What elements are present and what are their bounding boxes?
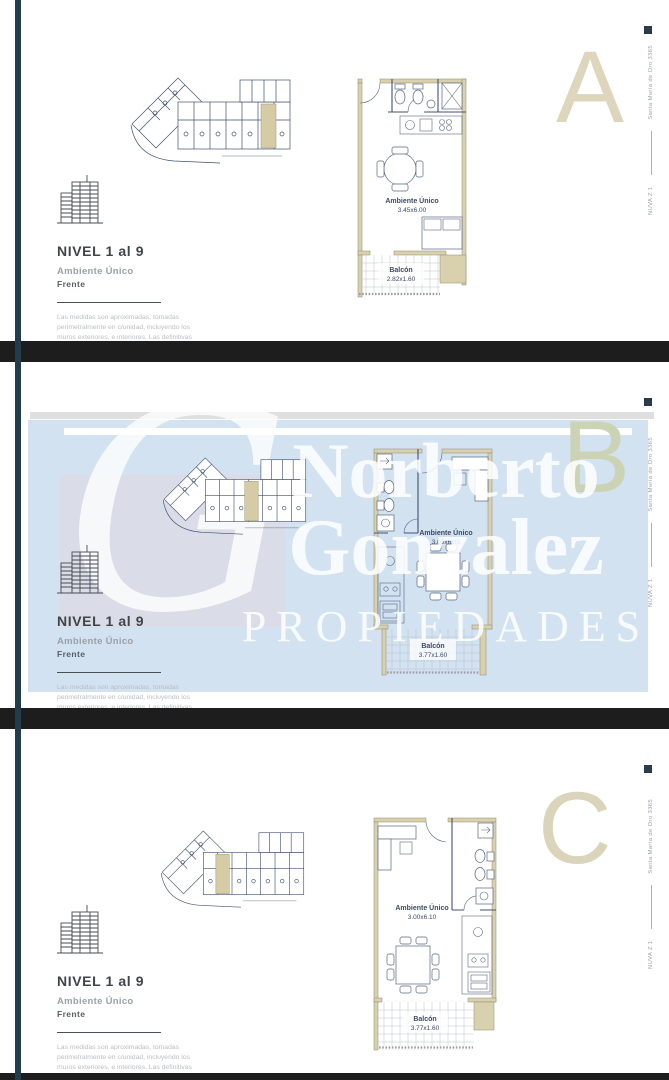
side-project: NUVA Z 1 bbox=[648, 940, 654, 969]
divider-bar bbox=[0, 1073, 669, 1080]
unit-info: NIVEL 1 al 9 Ambiente Único Frente Las m… bbox=[57, 175, 195, 341]
side-rule bbox=[651, 131, 652, 175]
divider-rule bbox=[57, 1032, 161, 1033]
balcony-label: Balcón bbox=[413, 1016, 436, 1023]
side-address: Santa María de Oro 3365 bbox=[648, 45, 654, 120]
level-title: NIVEL 1 al 9 bbox=[57, 973, 195, 989]
balcony-label: Balcón bbox=[389, 267, 412, 274]
divider-bar bbox=[0, 708, 669, 729]
highlighted-unit bbox=[245, 481, 258, 520]
room-label: Ambiente Único bbox=[419, 528, 472, 537]
floor-plan: Ambiente Único 3.00x6.35 Balcón 3.77x1.6… bbox=[368, 443, 498, 685]
key-plan bbox=[122, 58, 298, 174]
unit-type: Ambiente Único bbox=[57, 636, 195, 647]
corner-marker bbox=[644, 398, 652, 406]
room-dimensions: 3.45x6.00 bbox=[398, 207, 427, 214]
orientation: Frente bbox=[57, 279, 195, 289]
floor-plan: Ambiente Único 3.00x6.10 Balcón 3.77x1.6… bbox=[368, 812, 502, 1058]
measurements-disclaimer: Las medidas son aproximadas, tomadas per… bbox=[57, 683, 195, 708]
balcony-dimensions: 3.77x1.60 bbox=[411, 1025, 440, 1032]
building-elevation-icon bbox=[57, 175, 103, 229]
orientation: Frente bbox=[57, 1009, 195, 1019]
balcony-dimensions: 3.77x1.60 bbox=[419, 652, 448, 659]
side-address: Santa María de Oro 3365 bbox=[648, 437, 654, 512]
key-plan bbox=[155, 440, 313, 544]
highlighted-unit bbox=[261, 104, 276, 148]
building-elevation-icon bbox=[57, 545, 103, 599]
side-label: NUVA Z 1 Santa María de Oro 3365 bbox=[646, 45, 656, 215]
level-title: NIVEL 1 al 9 bbox=[57, 243, 195, 259]
level-title: NIVEL 1 al 9 bbox=[57, 613, 195, 629]
side-rule bbox=[651, 523, 652, 567]
side-label: NUVA Z 1 Santa María de Oro 3365 bbox=[646, 799, 656, 969]
divider-rule bbox=[57, 302, 161, 303]
side-address: Santa María de Oro 3365 bbox=[648, 799, 654, 874]
unit-letter: A bbox=[556, 36, 624, 138]
corner-marker bbox=[644, 765, 652, 773]
building-elevation-icon bbox=[57, 905, 103, 959]
divider-bar bbox=[0, 341, 669, 362]
room-label: Ambiente Único bbox=[385, 196, 438, 205]
measurements-disclaimer: Las medidas son aproximadas, tomadas per… bbox=[57, 313, 195, 341]
side-project: NUVA Z 1 bbox=[648, 186, 654, 215]
room-label: Ambiente Único bbox=[395, 903, 448, 912]
panel-unit-b: G B NIVEL 1 al 9 Ambiente Único Frente L… bbox=[0, 362, 669, 708]
key-plan bbox=[153, 813, 311, 917]
corner-marker bbox=[644, 26, 652, 34]
panel-unit-a: A NIVEL 1 al 9 Ambiente Único Frente Las… bbox=[0, 0, 669, 341]
highlighted-unit bbox=[216, 854, 229, 893]
panel-unit-c: C NIVEL 1 al 9 Ambiente Único Frente Las… bbox=[0, 729, 669, 1073]
unit-type: Ambiente Único bbox=[57, 996, 195, 1007]
divider-rule bbox=[57, 672, 161, 673]
side-label: NUVA Z 1 Santa María de Oro 3365 bbox=[646, 437, 656, 607]
balcony-label: Balcón bbox=[421, 643, 444, 650]
unit-type: Ambiente Único bbox=[57, 266, 195, 277]
side-project: NUVA Z 1 bbox=[648, 578, 654, 607]
side-rule bbox=[651, 885, 652, 929]
unit-info: NIVEL 1 al 9 Ambiente Único Frente Las m… bbox=[57, 545, 195, 708]
left-accent-bar bbox=[15, 0, 21, 1080]
balcony-dimensions: 2.82x1.60 bbox=[387, 276, 416, 283]
unit-letter: B bbox=[562, 406, 630, 508]
measurements-disclaimer: Las medidas son aproximadas, tomadas per… bbox=[57, 1043, 195, 1073]
orientation: Frente bbox=[57, 649, 195, 659]
unit-info: NIVEL 1 al 9 Ambiente Único Frente Las m… bbox=[57, 905, 195, 1073]
floor-plan: Ambiente Único 3.45x6.00 Balcón 2.82x1.6… bbox=[352, 75, 472, 305]
unit-letter: C bbox=[538, 777, 612, 879]
room-dimensions: 3.00x6.10 bbox=[408, 914, 437, 921]
